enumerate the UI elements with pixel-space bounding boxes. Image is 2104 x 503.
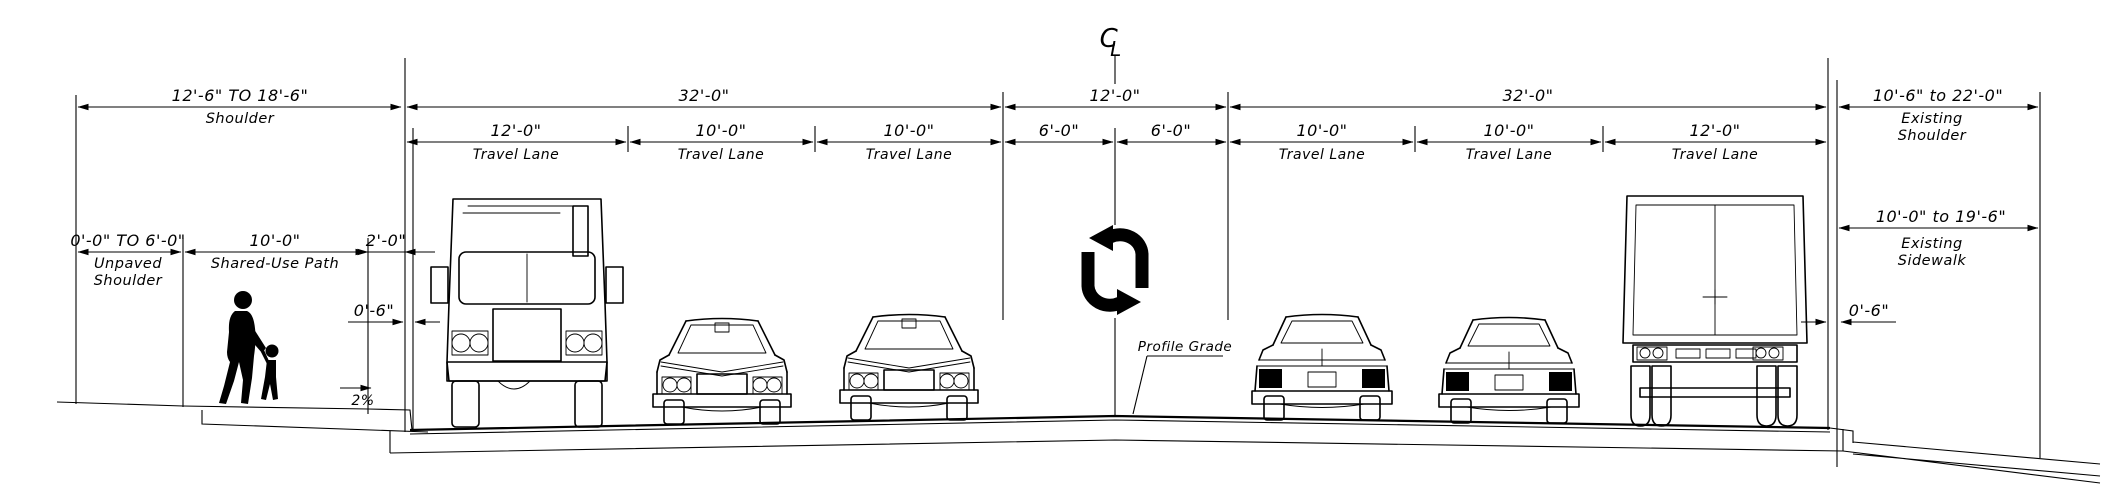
unpaved-shoulder-label-1: Unpaved — [94, 256, 162, 272]
lane-1-label: Travel Lane — [473, 147, 559, 163]
left-curb-dim: 0'-6" — [354, 301, 394, 320]
box-truck-rear — [1623, 196, 1807, 426]
right-shoulder-label-2: Shoulder — [1898, 128, 1967, 144]
car-rear-2 — [1439, 318, 1579, 424]
profile-grade-callout: Profile Grade — [1133, 339, 1232, 414]
lane-1-dim: 12'-0" — [490, 121, 541, 140]
lane-3-label: Travel Lane — [866, 147, 952, 163]
lane-3-dim: 10'-0" — [883, 121, 934, 140]
semi-truck-front — [431, 199, 623, 427]
dimension-texts: 12'-6" TO 18'-6" Shoulder 32'-0" 12'-0" … — [70, 86, 2006, 409]
cross-slope-label: 2% — [351, 393, 374, 409]
roadway-cross-section-sheet: C L 12'-6" TO 18'-6" Shoulder 32'-0" 12'… — [0, 0, 2104, 503]
lane-2-label: Travel Lane — [678, 147, 764, 163]
lane-6-label: Travel Lane — [1672, 147, 1758, 163]
car-front-2 — [840, 315, 978, 421]
existing-sidewalk-label-2: Sidewalk — [1898, 253, 1967, 269]
profile-grade-label: Profile Grade — [1138, 339, 1232, 355]
pedestrian-silhouettes — [219, 291, 279, 404]
lane-4-label: Travel Lane — [1279, 147, 1365, 163]
median-half-right-dim: 6'-0" — [1151, 121, 1191, 140]
right-curb-dim: 0'-6" — [1849, 301, 1889, 320]
right-roadway-dim: 32'-0" — [1502, 86, 1553, 105]
lane-4-dim: 10'-0" — [1296, 121, 1347, 140]
car-rear-1 — [1252, 315, 1392, 421]
two-way-left-turn-arrows-icon — [1088, 225, 1142, 315]
unpaved-shoulder-dim: 0'-0" TO 6'-0" — [70, 231, 185, 250]
right-shoulder-label-1: Existing — [1901, 111, 1962, 127]
cross-section-diagram: C L 12'-6" TO 18'-6" Shoulder 32'-0" 12'… — [0, 0, 2104, 503]
lane-5-label: Travel Lane — [1466, 147, 1552, 163]
buffer-dim: 2'-0" — [366, 231, 406, 250]
centerline-symbol: C L — [1100, 24, 1122, 61]
left-shoulder-dim: 12'-6" TO 18'-6" — [172, 86, 309, 105]
median-dim: 12'-0" — [1089, 86, 1140, 105]
unpaved-shoulder-label-2: Shoulder — [94, 273, 163, 289]
shared-use-path-label: Shared-Use Path — [211, 256, 339, 272]
lane-6-dim: 12'-0" — [1689, 121, 1740, 140]
existing-sidewalk-dim: 10'-0" to 19'-6" — [1876, 207, 2006, 226]
car-front-1 — [653, 319, 791, 425]
shared-use-path-dim: 10'-0" — [249, 231, 300, 250]
ground-profile — [57, 402, 2100, 483]
existing-sidewalk-label-1: Existing — [1901, 236, 1962, 252]
right-shoulder-dim: 10'-6" to 22'-0" — [1873, 86, 2003, 105]
lane-5-dim: 10'-0" — [1483, 121, 1534, 140]
left-shoulder-label: Shoulder — [206, 111, 275, 127]
left-roadway-dim: 32'-0" — [678, 86, 729, 105]
median-half-left-dim: 6'-0" — [1039, 121, 1079, 140]
lane-2-dim: 10'-0" — [695, 121, 746, 140]
centerline-l: L — [1110, 37, 1122, 61]
